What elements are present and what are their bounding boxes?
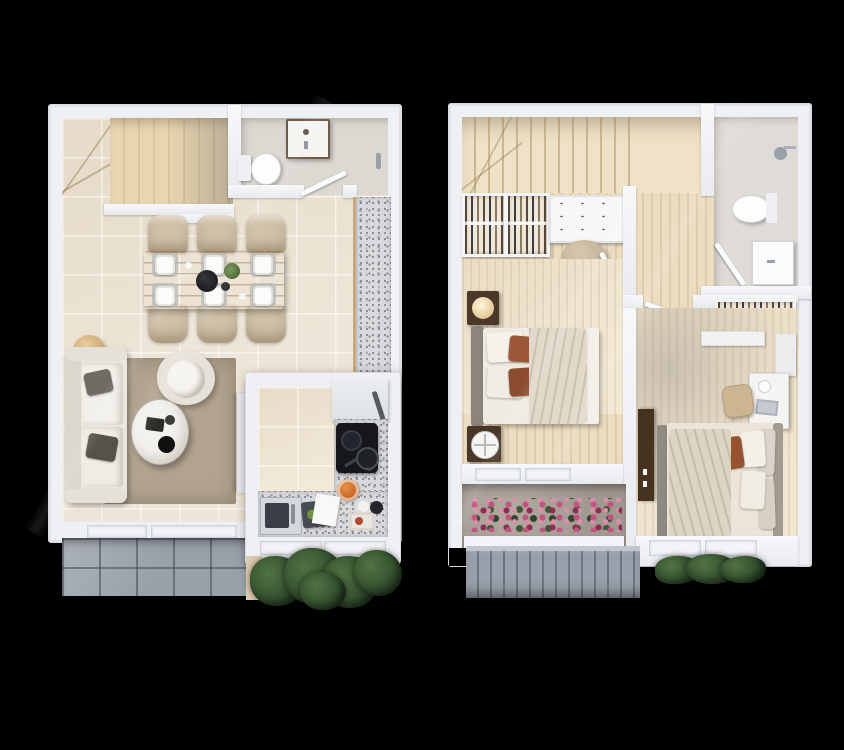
shower-arm	[784, 146, 796, 149]
armchair-seat	[162, 355, 210, 403]
table-plant	[224, 263, 240, 279]
stair-shading	[110, 118, 233, 206]
pan-handle	[344, 458, 357, 468]
desk	[749, 373, 789, 429]
flower-planter	[466, 498, 622, 532]
dining-chair	[246, 215, 286, 253]
closet-clothes	[508, 196, 547, 254]
window-sill	[475, 468, 521, 481]
coffee-table	[131, 399, 189, 465]
cabinet-handle	[767, 260, 775, 263]
sofa	[65, 347, 127, 503]
food-item	[355, 517, 363, 525]
toilet-bowl	[732, 195, 770, 223]
small-dish	[221, 282, 230, 291]
closet-clothes	[465, 196, 504, 254]
wall-bedroom2-north-a	[623, 295, 643, 308]
coffee-table-bowl	[158, 436, 175, 453]
dining-table	[144, 251, 284, 309]
desk-chair	[721, 383, 755, 419]
wall-shelf	[701, 331, 765, 346]
railing-top-rail	[466, 546, 640, 551]
window-sill	[649, 540, 701, 556]
sofa-armrest	[65, 489, 127, 503]
dinner-plate	[155, 255, 175, 275]
fruit-bowl	[337, 479, 359, 501]
double-bed-2	[657, 423, 783, 549]
upper-bathroom-floor	[714, 117, 798, 289]
recipe-board	[312, 493, 340, 526]
balcony-floor	[462, 484, 626, 553]
stair-winder-upper	[462, 117, 522, 193]
sink-basin	[265, 503, 289, 528]
wall-hall-bedroom1	[623, 186, 636, 306]
bed-footboard	[589, 328, 599, 424]
dinner-plate	[253, 255, 273, 275]
table-lamp	[472, 297, 494, 319]
tall-cabinet	[776, 334, 796, 376]
wall-stairs-bathroom	[228, 105, 241, 195]
kitchen	[245, 372, 401, 564]
window-sill	[151, 525, 237, 538]
dressing-table	[549, 195, 627, 243]
window-sill	[87, 525, 147, 538]
throw-pillow	[85, 433, 119, 463]
wardrobe-detail	[643, 481, 647, 487]
kitchen-sink	[260, 497, 302, 535]
shrub	[720, 556, 766, 583]
wall-stairs-bath-upper	[701, 104, 714, 196]
sofa-back	[65, 353, 81, 497]
frying-pan	[356, 447, 379, 470]
sink-faucet	[291, 504, 295, 524]
upper-floor-plan	[448, 103, 812, 567]
corner-mask	[449, 548, 467, 566]
round-mirror	[471, 431, 499, 459]
window-sill	[525, 468, 571, 481]
towel-bar	[376, 153, 381, 169]
cup	[239, 293, 246, 300]
coffee-table-cup	[165, 415, 175, 425]
dining-chair	[197, 305, 237, 343]
mirror-tick	[484, 434, 486, 456]
sink-cabinet	[752, 241, 794, 285]
shrub	[300, 572, 346, 610]
toilet-tank	[238, 155, 251, 181]
wardrobe-detail	[643, 469, 647, 475]
wardrobe-closet	[462, 193, 550, 257]
food-tray	[350, 513, 374, 530]
sofa-armrest	[65, 347, 127, 361]
desk-lamp	[758, 380, 771, 393]
nightstand-with-lamp	[467, 291, 499, 325]
kettle	[370, 501, 383, 514]
dinner-plate	[155, 286, 175, 306]
tall-dark-wardrobe	[638, 409, 654, 501]
small-plate	[356, 499, 371, 514]
nightstand-with-mirror	[467, 426, 501, 462]
serving-bowl	[196, 270, 218, 292]
laptop	[755, 399, 778, 416]
dinner-plate	[253, 286, 273, 306]
sink-drain	[303, 129, 309, 135]
cup	[185, 262, 192, 269]
granite-counter-strip	[353, 197, 391, 373]
bed-footboard	[657, 425, 667, 547]
bed-duvet	[529, 328, 587, 424]
stair-winder-steps	[62, 118, 110, 206]
shrub	[354, 550, 402, 596]
sink-faucet	[304, 141, 308, 149]
toilet-bowl	[251, 153, 281, 185]
vanity-sink	[286, 119, 330, 159]
dining-chair	[148, 215, 188, 253]
upper-stairs	[462, 117, 709, 193]
dining-chair	[246, 305, 286, 343]
burner	[341, 430, 362, 451]
double-bed-1	[471, 326, 599, 426]
floor-plans-canvas	[0, 0, 844, 750]
dining-chair	[197, 215, 237, 253]
bed-pillow	[740, 470, 766, 509]
dining-chair	[148, 305, 188, 343]
coffee-table-tray	[145, 417, 165, 432]
bathroom-door-upper	[714, 242, 746, 286]
bed-blanket	[669, 429, 731, 547]
balcony-railing	[466, 546, 640, 598]
patio-tiles	[62, 538, 246, 596]
cooktop	[336, 423, 378, 473]
toilet-tank	[766, 193, 777, 223]
armchair	[157, 351, 215, 405]
wall-bathroom-south-a	[228, 185, 304, 198]
